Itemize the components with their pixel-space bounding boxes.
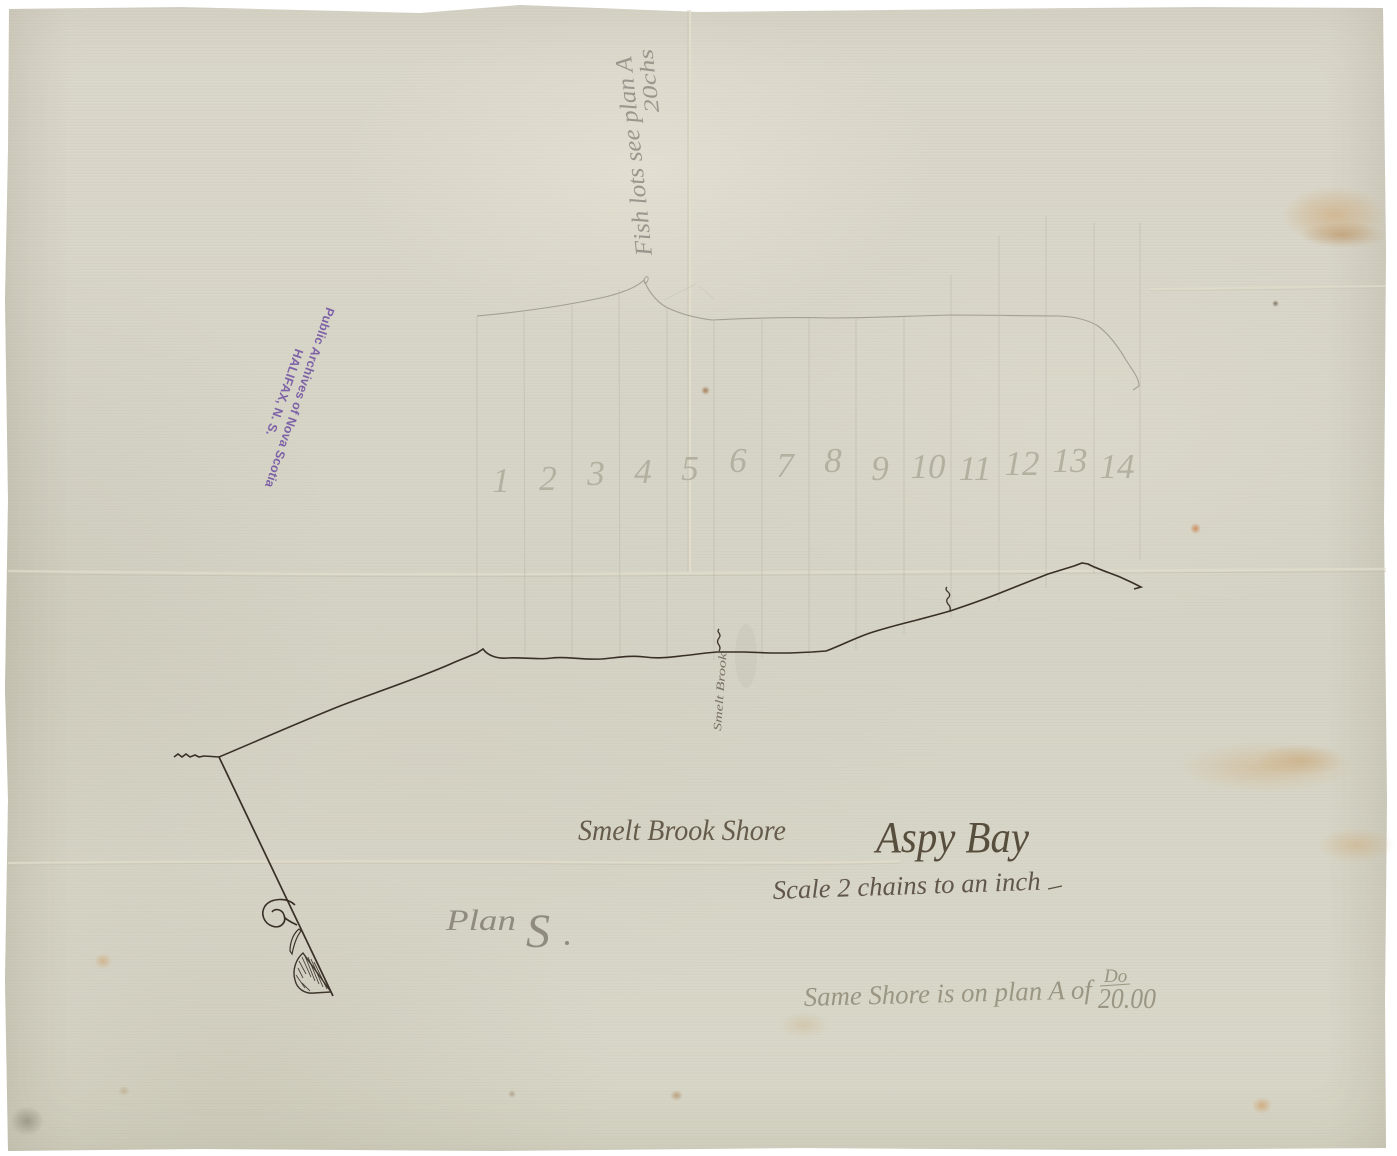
svg-text:Same Shore is on plan A of: Same Shore is on plan A of xyxy=(803,974,1095,1012)
svg-text:2: 2 xyxy=(539,459,557,498)
svg-text:12: 12 xyxy=(1005,444,1040,483)
svg-text:Plan: Plan xyxy=(445,904,516,937)
svg-text:4: 4 xyxy=(634,452,652,491)
svg-text:Smelt Brook: Smelt Brook xyxy=(712,651,729,731)
svg-text:10: 10 xyxy=(911,447,947,486)
svg-text:Smelt Brook Shore: Smelt Brook Shore xyxy=(578,814,786,847)
svg-text:13: 13 xyxy=(1053,441,1088,480)
svg-text:Do: Do xyxy=(1103,966,1127,987)
svg-text:Aspy Bay: Aspy Bay xyxy=(873,813,1029,862)
svg-text:20.00: 20.00 xyxy=(1098,983,1156,1015)
svg-text:5: 5 xyxy=(681,449,699,488)
svg-text:1: 1 xyxy=(492,461,510,500)
svg-text:8: 8 xyxy=(824,441,842,480)
svg-text:3: 3 xyxy=(586,454,605,493)
svg-text:S: S xyxy=(526,905,550,958)
svg-text:7: 7 xyxy=(776,446,795,485)
svg-text:11: 11 xyxy=(959,449,991,488)
svg-text:6: 6 xyxy=(729,441,747,480)
svg-text:Scale 2 chains to an inch: Scale 2 chains to an inch xyxy=(772,866,1041,905)
svg-text:9: 9 xyxy=(871,449,889,488)
svg-text:14: 14 xyxy=(1100,447,1135,486)
